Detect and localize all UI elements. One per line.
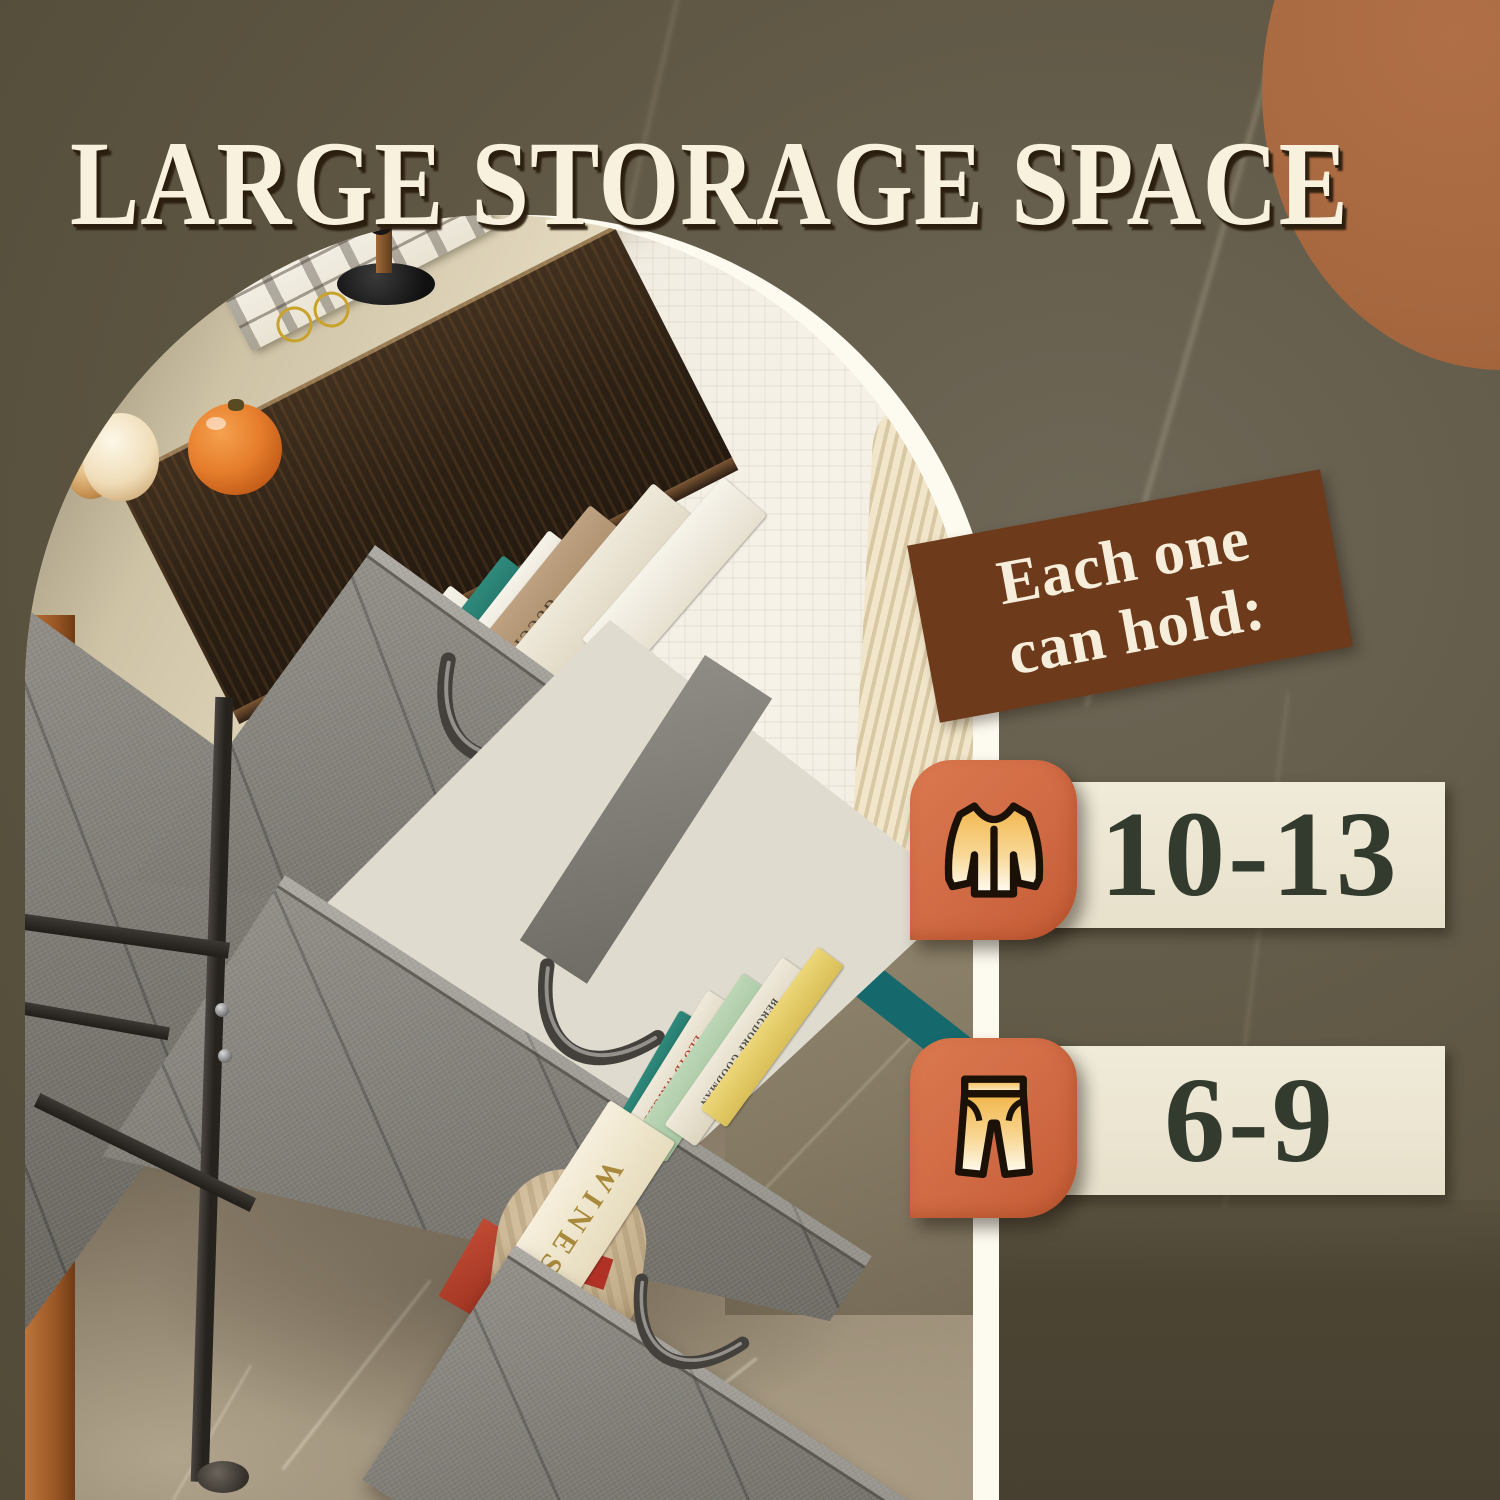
persimmon-fruit xyxy=(188,403,282,495)
frame-bolt xyxy=(215,1003,229,1017)
capacity-badge: Each one can hold: xyxy=(907,469,1353,723)
pants-tile xyxy=(910,1038,1077,1218)
metal-frame-foot xyxy=(197,1461,249,1493)
jacket-tile xyxy=(910,760,1077,940)
product-photo-arch: JEAN-MIC FRA PATHE GUCCI LLOYD WRIGHT BE… xyxy=(25,215,973,1500)
page-title: LARGE STORAGE SPACE xyxy=(70,121,1349,248)
jacket-icon xyxy=(933,789,1055,911)
pants-range: 6-9 xyxy=(1164,1051,1336,1191)
frame-bolt xyxy=(218,1049,232,1063)
product-infographic: JEAN-MIC FRA PATHE GUCCI LLOYD WRIGHT BE… xyxy=(0,0,1500,1500)
background-dark-panel xyxy=(999,1200,1500,1500)
glass-lamp xyxy=(83,413,159,501)
pants-icon xyxy=(933,1067,1055,1189)
jackets-range: 10-13 xyxy=(1100,785,1400,925)
